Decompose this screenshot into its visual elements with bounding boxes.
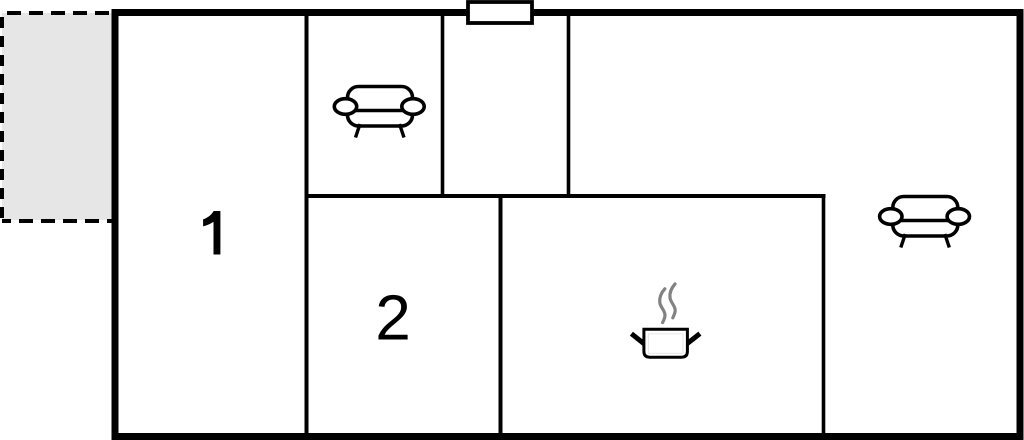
- svg-text:2: 2: [375, 282, 411, 354]
